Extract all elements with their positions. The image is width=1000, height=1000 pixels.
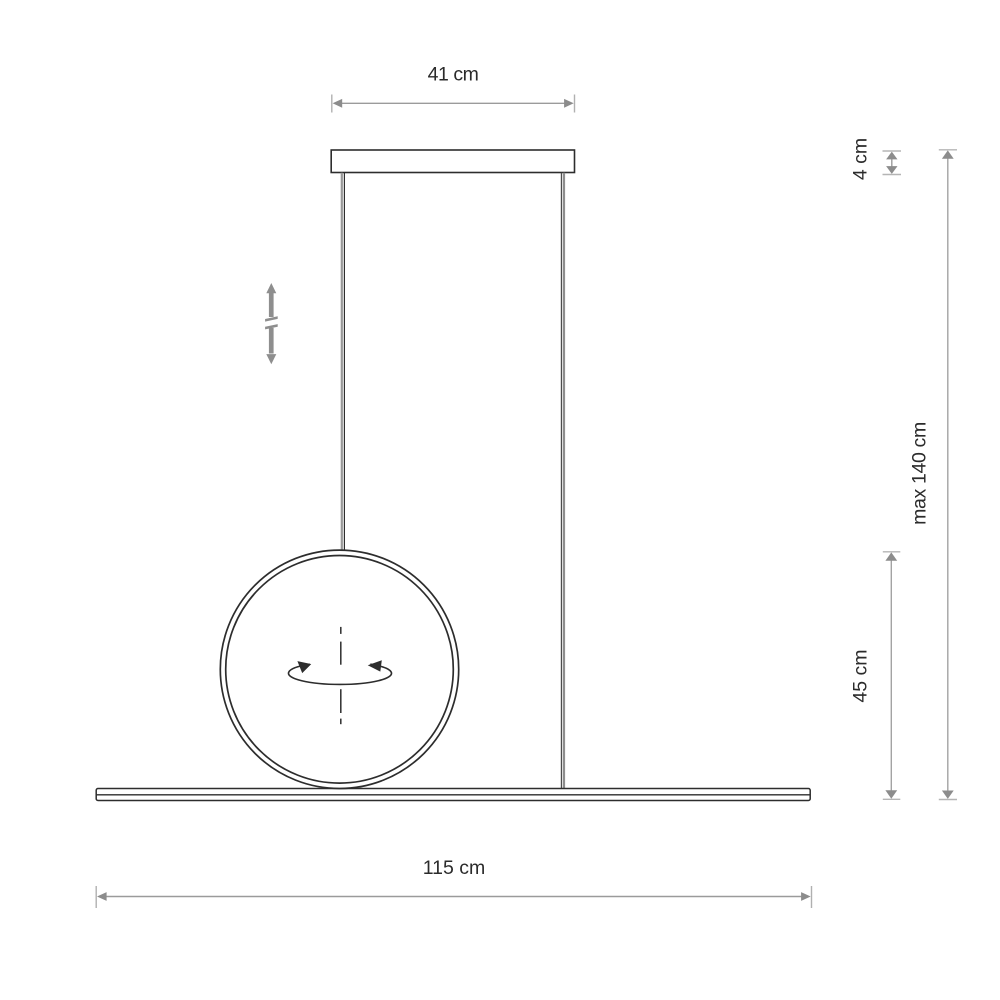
svg-text:4 cm: 4 cm	[850, 138, 872, 180]
svg-text:max 140 cm: max 140 cm	[909, 422, 931, 525]
svg-text:115 cm: 115 cm	[423, 857, 486, 879]
svg-text:45 cm: 45 cm	[850, 649, 872, 702]
svg-text:41 cm: 41 cm	[428, 64, 479, 86]
